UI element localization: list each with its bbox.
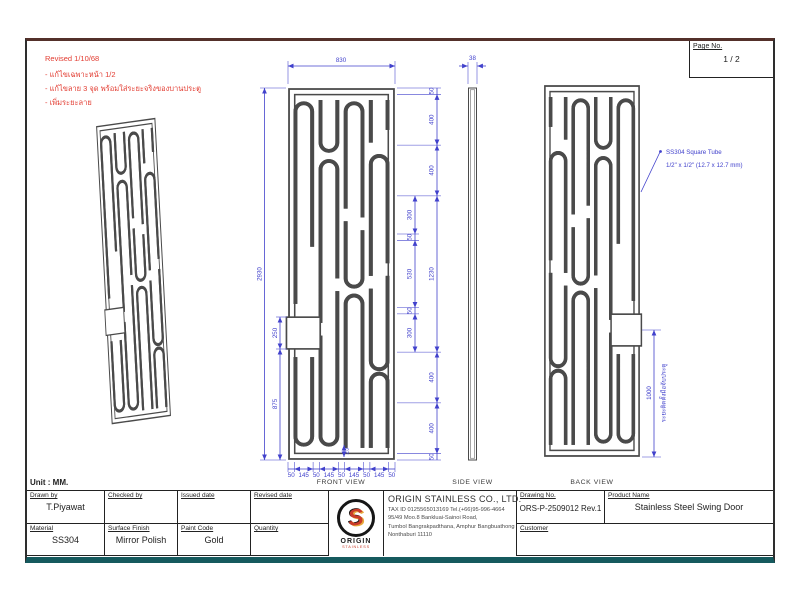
svg-text:2930: 2930 xyxy=(257,267,264,281)
annotation-line1: SS304 Square Tube xyxy=(666,149,722,156)
dim-bottom-value: 50 xyxy=(288,472,295,479)
svg-text:830: 830 xyxy=(336,57,347,64)
page-number-box: Page No. 1 / 2 xyxy=(689,41,773,78)
unit-label: Unit : MM. xyxy=(30,478,68,487)
dim-bottom-value: 145 xyxy=(349,472,360,479)
revision-notes: Revised 1/10/68 - แก้ไขเฉพาะหน้า 1/2 - แ… xyxy=(45,52,201,110)
page-no-label: Page No. xyxy=(690,41,773,50)
company-logo: S ORIGIN STAINLESS xyxy=(329,491,384,556)
revision-note: - แก้ไขเฉพาะหน้า 1/2 xyxy=(45,68,201,82)
dim-bottom-value: 50 xyxy=(338,472,345,479)
company-address3: Nonthaburi 11110 xyxy=(388,531,514,539)
svg-text:38: 38 xyxy=(469,55,476,62)
annotation-line2: 1/2" x 1/2" (12.7 x 12.7 mm) xyxy=(666,162,743,169)
company-name: ORIGIN STAINLESS CO., LTD. xyxy=(388,494,514,504)
field-checked-by: Checked by xyxy=(105,491,178,524)
company-address1: 95/49 Moo.8 Bankluai-Sainoi Road, xyxy=(388,514,514,522)
revision-note: - เพิ่มระยะลาย xyxy=(45,96,201,110)
dim-right-chain-value: 400 xyxy=(429,423,436,434)
svg-text:25: 25 xyxy=(344,447,351,454)
dim-right-chain-value: 400 xyxy=(429,372,436,383)
dim-bottom-value: 145 xyxy=(324,472,335,479)
field-quantity: Quantity xyxy=(251,524,329,556)
field-paint-code: Paint Code Gold xyxy=(178,524,251,556)
svg-text:875: 875 xyxy=(272,398,279,409)
dim-right-inner-chain: 300 50 530 50 300 xyxy=(397,196,419,352)
dim-bottom-value: 50 xyxy=(388,472,395,479)
origin-logo-icon: S xyxy=(337,499,375,537)
field-issued-date: Issued date xyxy=(178,491,251,524)
field-drawing-no: Drawing No. ORS-P-2509012 Rev.1 xyxy=(517,491,605,524)
dim-right-chain-value: 50 xyxy=(429,87,436,94)
dim-right-chain-value: 400 xyxy=(429,114,436,125)
dim-right-chain: 50 400 400 1230 400 400 50 xyxy=(397,87,441,460)
revision-note: - แก้ไขลาย 3 จุด พร้อมใส่ระยะจริงของบานป… xyxy=(45,82,201,96)
svg-text:250: 250 xyxy=(272,327,279,338)
tube-annotation: SS304 Square Tube 1/2" x 1/2" (12.7 x 12… xyxy=(641,149,743,192)
dim-front-width: 830 xyxy=(288,57,395,84)
field-material: Material SS304 xyxy=(27,524,105,556)
back-view-label: BACK VIEW xyxy=(570,479,613,486)
dim-right-inner-value: 50 xyxy=(407,307,414,314)
revision-title: Revised 1/10/68 xyxy=(45,52,201,66)
logo-text: ORIGIN xyxy=(341,538,372,545)
company-info: ORIGIN STAINLESS CO., LTD. TAX ID 012556… xyxy=(384,491,517,556)
dim-right-inner-value: 300 xyxy=(407,327,414,338)
logo-subtext: STAINLESS xyxy=(342,545,370,549)
side-view-label: SIDE VIEW xyxy=(452,479,493,486)
perspective-view-panel xyxy=(95,119,170,424)
side-view-panel xyxy=(469,88,477,460)
title-block: Drawn by T.Piyawat Checked by Issued dat… xyxy=(27,490,773,557)
page-no-value: 1 / 2 xyxy=(690,54,773,64)
svg-text:1000: 1000 xyxy=(646,386,653,400)
field-revised-date: Revised date xyxy=(251,491,329,524)
dim-right-chain-value: 400 xyxy=(429,165,436,176)
dim-right-inner-value: 300 xyxy=(407,209,414,220)
field-surface-finish: Surface Finish Mirror Polish xyxy=(105,524,178,556)
company-address2: Tumbol Bangrakpadthana, Amphur Bangbuath… xyxy=(388,523,514,531)
dim-bottom-value: 145 xyxy=(299,472,310,479)
dim-left-notch: 250 875 xyxy=(272,317,287,460)
field-product-name: Product Name Stainless Steel Swing Door xyxy=(605,491,773,524)
dim-bottom-value: 50 xyxy=(313,472,320,479)
dim-right-chain-value: 50 xyxy=(429,453,436,460)
dim-handle-distance: 1000 ระยะติดตั้งมือจับประตู xyxy=(642,330,668,457)
field-customer: Customer xyxy=(517,524,773,556)
front-view-label: FRONT VIEW xyxy=(317,479,366,486)
company-tax-line: TAX ID 0125565013169 Tel.(+66)95-996-466… xyxy=(388,506,514,514)
handle-note: ระยะติดตั้งมือจับประตู xyxy=(659,364,668,423)
dim-right-inner-value: 530 xyxy=(407,268,414,279)
front-view-panel xyxy=(286,89,394,459)
dim-bottom-value: 50 xyxy=(363,472,370,479)
back-view-panel xyxy=(545,86,641,456)
dim-right-inner-value: 50 xyxy=(407,233,414,240)
dim-bottom-chain: 50 145 50 145 50 145 50 145 50 xyxy=(288,462,396,479)
field-drawn-by: Drawn by T.Piyawat xyxy=(27,491,105,524)
dim-side-thickness: 38 xyxy=(459,55,486,84)
dim-bottom-value: 145 xyxy=(374,472,385,479)
dim-right-chain-value: 1230 xyxy=(429,267,436,281)
